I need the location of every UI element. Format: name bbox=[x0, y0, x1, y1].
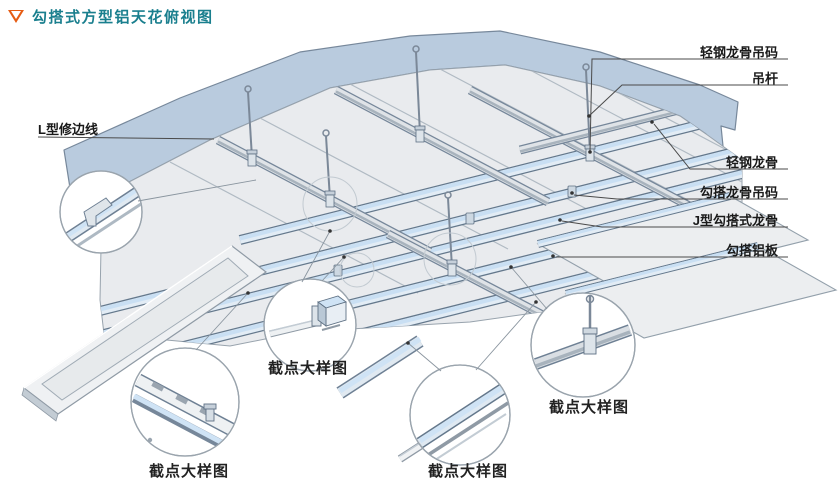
callout-steel-runner: 轻钢龙骨 bbox=[726, 152, 778, 171]
ceiling-diagram-page: 勾搭式方型铝天花俯视图 L型修边线 轻钢龙骨吊码 吊杆 轻钢龙骨 勾搭龙骨吊码 … bbox=[0, 0, 840, 500]
callout-l-trim: L型修边线 bbox=[38, 119, 98, 138]
detail-circle-j-profile bbox=[410, 365, 510, 465]
detail-label-2: 截点大样图 bbox=[549, 396, 629, 417]
detail-label-1: 截点大样图 bbox=[268, 357, 348, 378]
detail-label-4: 截点大样图 bbox=[428, 460, 508, 481]
callout-hanger-rod: 吊杆 bbox=[752, 68, 778, 87]
exploded-keel-strip bbox=[340, 339, 420, 393]
callout-steel-runner-clip: 轻钢龙骨吊码 bbox=[700, 42, 778, 61]
title-triangle-icon bbox=[8, 10, 24, 23]
callout-hook-keel-clip: 勾搭龙骨吊码 bbox=[700, 182, 778, 201]
page-title: 勾搭式方型铝天花俯视图 bbox=[32, 6, 214, 27]
detail-circle-carrying-channel bbox=[131, 348, 240, 456]
isometric-ceiling-drawing bbox=[0, 0, 840, 500]
callout-hook-panel: 勾搭铝板 bbox=[726, 240, 778, 259]
diagram-title-row: 勾搭式方型铝天花俯视图 bbox=[8, 6, 214, 27]
detail-label-3: 截点大样图 bbox=[149, 460, 229, 481]
callout-j-hook-keel: J型勾搭式龙骨 bbox=[693, 210, 778, 229]
